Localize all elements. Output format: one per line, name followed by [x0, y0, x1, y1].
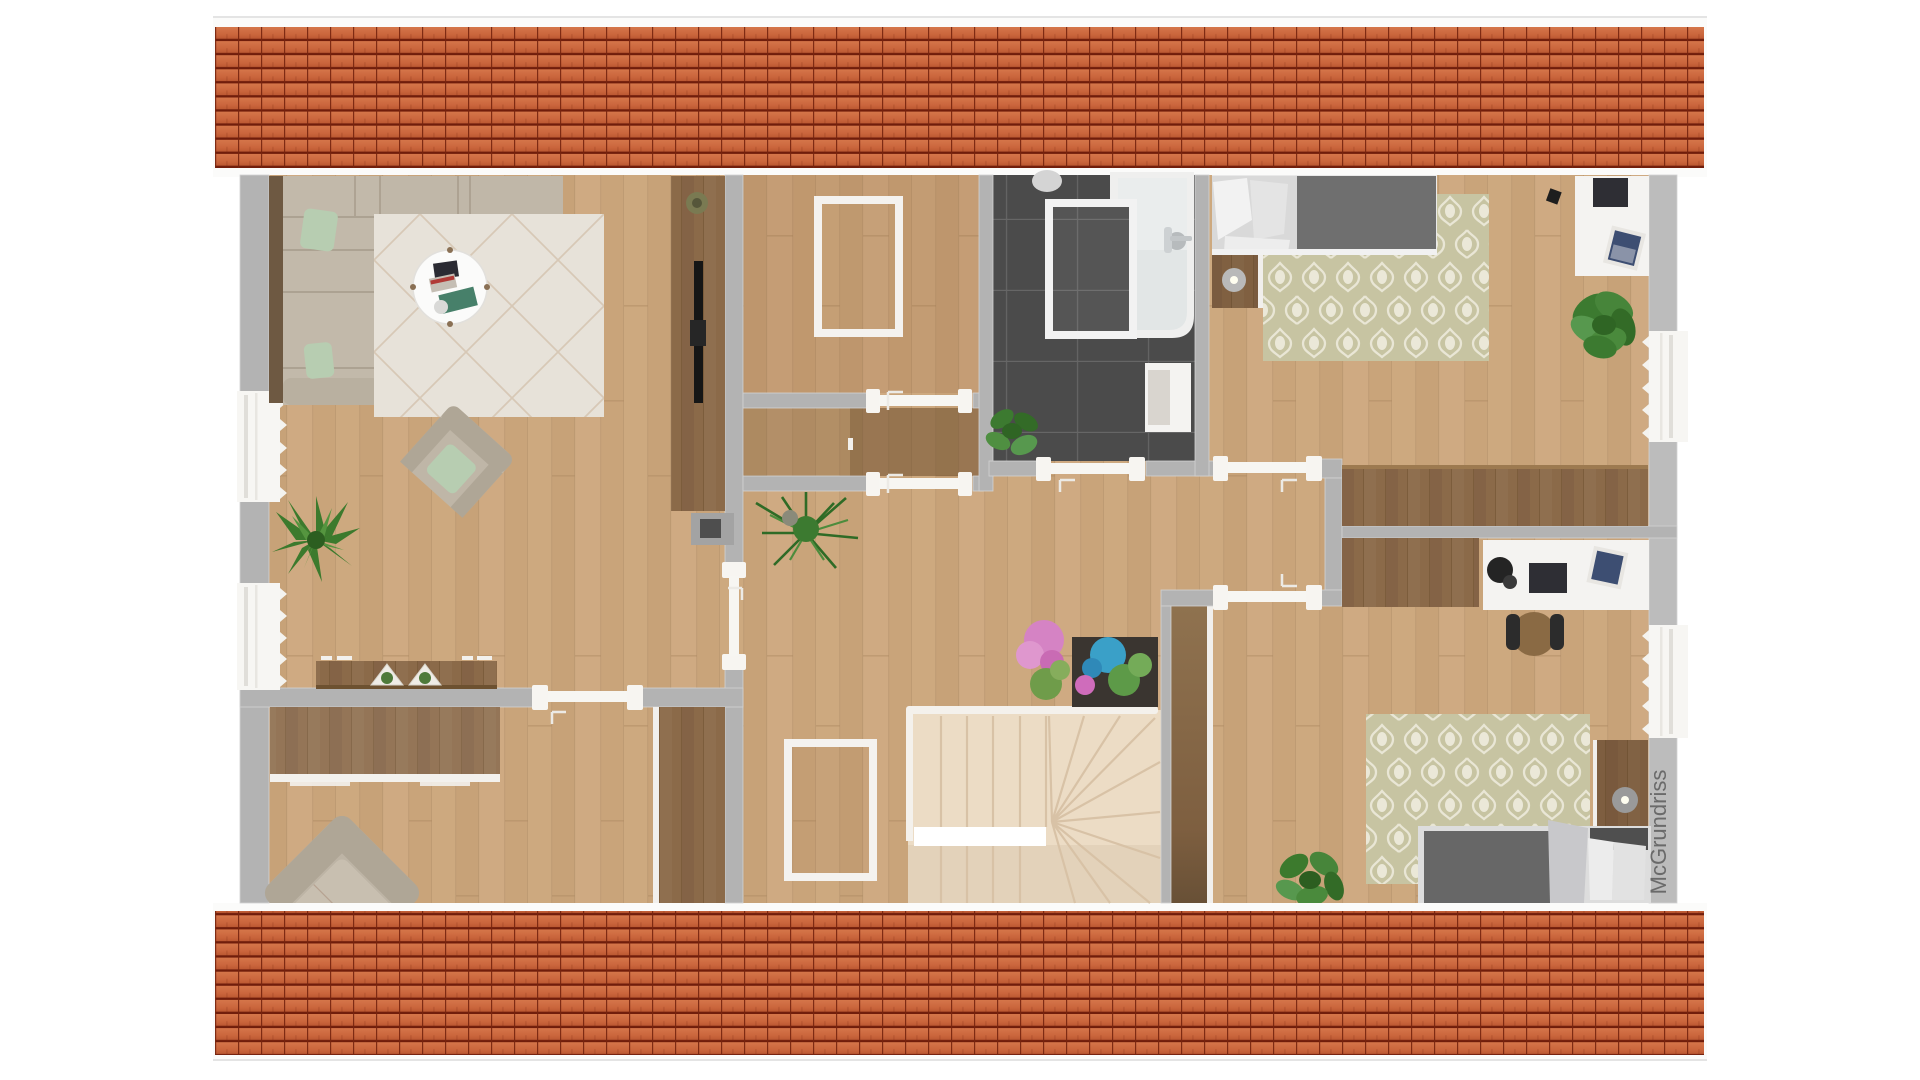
svg-text:McGrundriss: McGrundriss: [1646, 770, 1671, 895]
